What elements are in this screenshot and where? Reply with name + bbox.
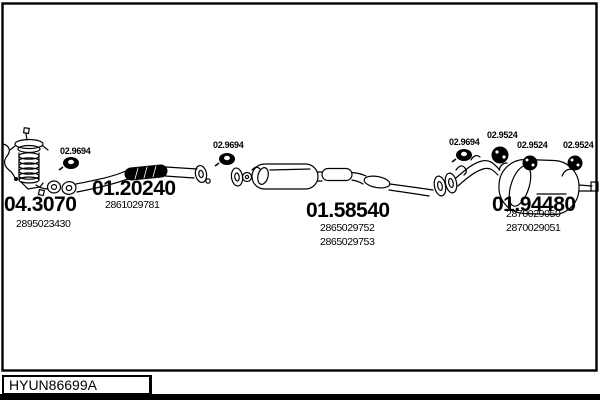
rubber-hanger-icon-2 [523,156,538,171]
oe-number-centre-silencer-2: 2865029753 [320,237,374,248]
gasket-code-label-2: 02.9694 [213,141,243,150]
rubber-hanger-icon-1 [492,147,509,164]
part-code-centre-silencer: 01.58540 [306,200,390,221]
oe-number-centre-silencer-1: 2865029752 [320,223,374,234]
gasket-icon-3 [452,149,472,162]
rubber-hanger-icon-3 [568,156,583,171]
oe-number-rear-silencer-2: 2870029051 [506,223,560,234]
part-code-front-pipe: 01.20240 [92,178,176,199]
hanger-code-label-1: 02.9524 [487,131,517,140]
title-block: HYUN86699A [2,375,152,395]
part-code-catalytic-converter: 04.3070 [4,194,76,215]
gasket-icon-1 [59,157,79,170]
drawing-number: HYUN86699A [9,377,97,393]
gasket-code-label-3: 02.9694 [449,138,479,147]
hanger-code-label-3: 02.9524 [563,141,593,150]
centre-silencer-drawing [230,164,433,196]
hanger-code-label-2: 02.9524 [517,141,547,150]
oe-number-front-pipe: 2861029781 [105,200,159,211]
oe-number-rear-silencer-1: 2870029050 [506,209,560,220]
oe-number-catalytic-converter: 2895023430 [16,219,70,230]
catalytic-converter-drawing [3,128,61,196]
oxygen-sensor-wire [3,144,15,178]
gasket-icon-2 [215,153,235,166]
gasket-code-label-1: 02.9694 [60,147,90,156]
parts-diagram-page: 04.3070 2895023430 01.20240 2861029781 0… [0,0,600,400]
